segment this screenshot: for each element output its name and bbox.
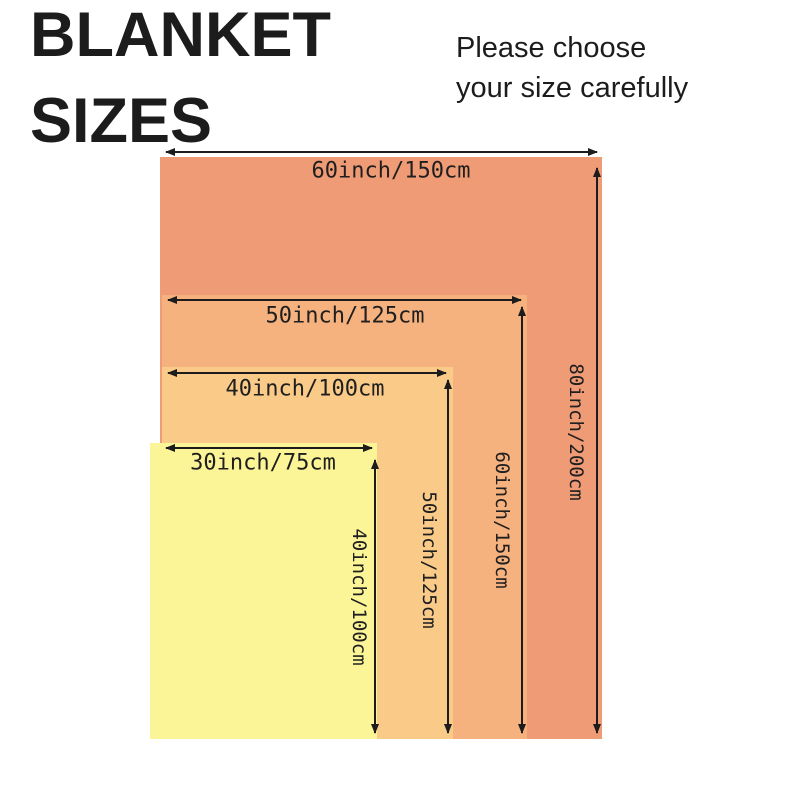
- blanket-sizes-infographic: BLANKET SIZES Please choose your size ca…: [0, 0, 800, 800]
- blanket-rect-40inch: [150, 443, 377, 739]
- subtitle-note: Please choose your size carefully: [456, 28, 688, 108]
- height-label-50inch: 50inch/125cm: [418, 491, 440, 628]
- width-label-30inch: 30inch/75cm: [190, 451, 336, 476]
- height-label-40inch: 40inch/100cm: [348, 528, 370, 665]
- page-title-line1: BLANKET: [30, 0, 331, 78]
- subtitle-line2: your size carefully: [456, 68, 688, 108]
- height-label-60inch: 60inch/150cm: [491, 451, 513, 588]
- page-title: BLANKET SIZES: [30, 0, 331, 164]
- width-label-60inch: 60inch/150cm: [312, 159, 471, 184]
- subtitle-line1: Please choose: [456, 28, 688, 68]
- page-title-line2: SIZES: [30, 78, 331, 164]
- width-label-40inch: 40inch/100cm: [226, 377, 385, 402]
- width-label-50inch: 50inch/125cm: [266, 304, 425, 329]
- height-label-80inch: 80inch/200cm: [565, 363, 587, 500]
